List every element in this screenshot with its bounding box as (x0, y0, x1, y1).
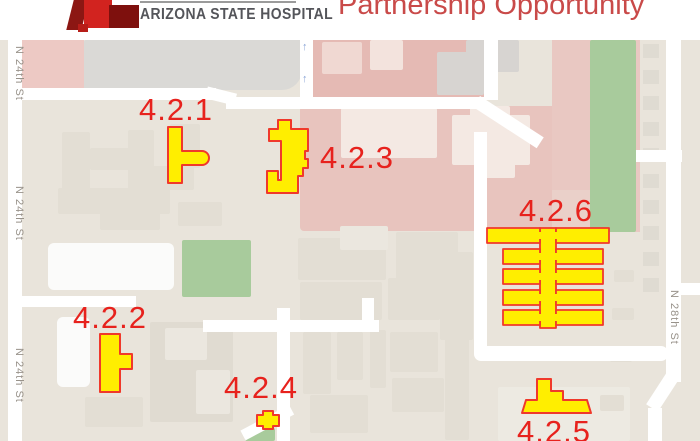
building (600, 395, 624, 411)
page: ARIZONA STATE HOSPITAL Partnership Oppor… (0, 0, 700, 441)
parking-lot (48, 243, 174, 290)
site-label-4-2-5: 4.2.5 (517, 416, 591, 441)
building (303, 332, 331, 394)
road-segment (484, 40, 498, 100)
highlight-building-4-2-3 (263, 118, 315, 198)
building (100, 210, 160, 230)
highlight-building-4-2-2 (95, 330, 137, 396)
building (388, 278, 440, 320)
building (390, 332, 438, 372)
highlight-building-4-2-4 (253, 408, 283, 432)
site-label-4-2-1: 4.2.1 (139, 94, 213, 125)
building-row (643, 44, 659, 300)
green-space (590, 40, 636, 232)
building (445, 332, 469, 440)
street-label-n24th: N 24th St (13, 186, 25, 241)
hospital-logo-icon (109, 5, 139, 28)
header: ARIZONA STATE HOSPITAL Partnership Oppor… (0, 0, 700, 40)
site-label-4-2-4: 4.2.4 (224, 372, 298, 403)
campus-map: N 24th St N 24th St N 24th St N 28th St … (0, 40, 700, 441)
site-label-4-2-2: 4.2.2 (73, 302, 147, 333)
building (165, 328, 207, 360)
street-label-n24th: N 24th St (13, 348, 25, 403)
building (178, 202, 222, 226)
building (310, 395, 368, 433)
building (614, 270, 634, 282)
road-segment (474, 346, 668, 361)
road-segment (648, 408, 662, 441)
one-way-arrow-icon: ↑ (302, 74, 308, 85)
road-segment (226, 97, 486, 109)
org-name: ARIZONA STATE HOSPITAL (140, 6, 333, 24)
road-segment (203, 320, 379, 332)
building (370, 40, 403, 70)
building (340, 226, 388, 250)
building (370, 330, 386, 388)
building (90, 148, 132, 170)
header-divider (140, 1, 296, 3)
building (322, 42, 362, 74)
highlight-building-4-2-6 (483, 225, 613, 343)
hospital-logo-icon (78, 24, 88, 32)
green-space (182, 240, 251, 297)
building (440, 252, 473, 340)
map-area (22, 40, 84, 90)
road-segment (646, 371, 680, 412)
site-label-4-2-6: 4.2.6 (519, 195, 593, 226)
street-label-n24th: N 24th St (13, 46, 25, 101)
parking-area (84, 40, 302, 90)
building (85, 397, 143, 427)
street-label-n28th: N 28th St (668, 290, 680, 345)
building (485, 160, 515, 178)
road-segment (362, 298, 374, 322)
hospital-logo-icon (84, 0, 112, 28)
page-title: Partnership Opportunity (338, 0, 644, 22)
road-segment (636, 150, 682, 162)
building (392, 378, 444, 412)
site-label-4-2-3: 4.2.3 (320, 142, 394, 173)
road-segment (681, 283, 700, 295)
building (612, 308, 634, 320)
one-way-arrow-icon: ↑ (302, 42, 308, 53)
building (337, 332, 363, 380)
highlight-building-4-2-1 (162, 122, 216, 188)
highlight-building-4-2-5 (515, 374, 599, 418)
